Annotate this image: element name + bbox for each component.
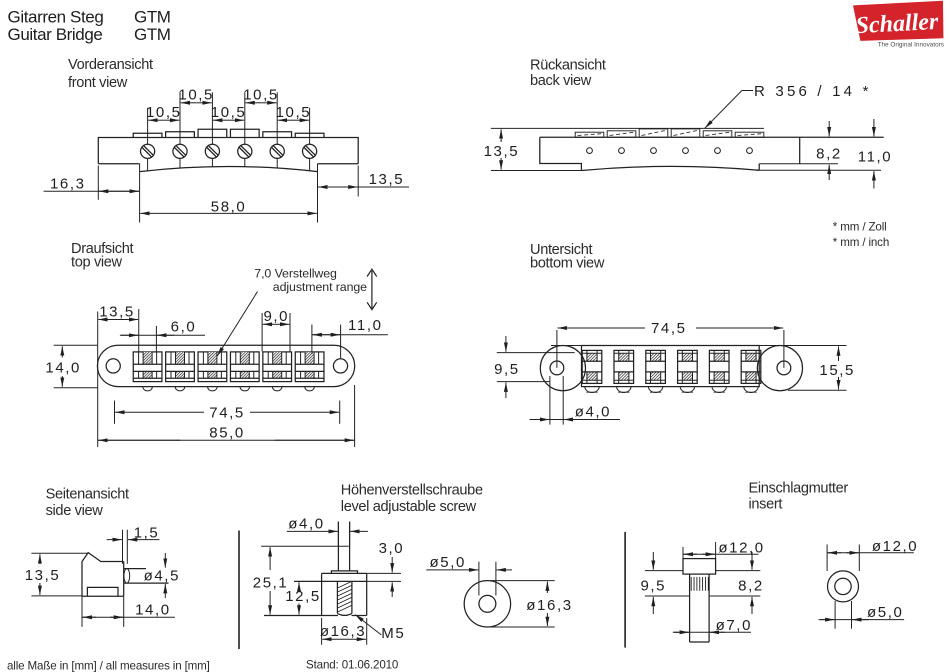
svg-text:14,0: 14,0 bbox=[45, 359, 81, 376]
svg-text:6,0: 6,0 bbox=[171, 319, 197, 336]
svg-text:top view: top view bbox=[71, 254, 123, 270]
svg-text:Guitar Bridge: Guitar Bridge bbox=[8, 25, 103, 44]
svg-text:16,3: 16,3 bbox=[50, 175, 86, 192]
svg-text:74,5: 74,5 bbox=[651, 320, 687, 337]
svg-text:level adjustable screw: level adjustable screw bbox=[341, 499, 477, 515]
svg-text:side view: side view bbox=[46, 503, 104, 519]
svg-text:13,5: 13,5 bbox=[25, 567, 61, 584]
svg-text:bottom view: bottom view bbox=[530, 256, 605, 272]
svg-text:9,5: 9,5 bbox=[494, 361, 520, 378]
svg-text:58,0: 58,0 bbox=[211, 199, 247, 216]
svg-text:ø5,0: ø5,0 bbox=[430, 554, 466, 571]
svg-text:R 356 / 14 *: R 356 / 14 * bbox=[754, 83, 872, 100]
svg-text:alle Maße in [mm] / all measur: alle Maße in [mm] / all measures in [mm] bbox=[7, 660, 210, 672]
svg-text:9,0: 9,0 bbox=[263, 308, 289, 325]
svg-text:insert: insert bbox=[749, 497, 783, 513]
svg-text:ø4,0: ø4,0 bbox=[575, 403, 611, 420]
svg-text:Gitarren Steg: Gitarren Steg bbox=[8, 7, 104, 26]
svg-text:7,0 Verstellweg: 7,0 Verstellweg bbox=[254, 267, 337, 281]
svg-text:Einschlagmutter: Einschlagmutter bbox=[749, 481, 849, 497]
svg-text:* mm / inch: * mm / inch bbox=[833, 236, 889, 249]
svg-text:Stand: 01.06.2010: Stand: 01.06.2010 bbox=[306, 659, 398, 672]
svg-text:11,0: 11,0 bbox=[348, 317, 382, 334]
svg-text:Seitenansicht: Seitenansicht bbox=[46, 486, 129, 502]
svg-text:ø4,5: ø4,5 bbox=[144, 568, 180, 585]
svg-text:front view: front view bbox=[68, 75, 128, 91]
svg-text:ø16,3: ø16,3 bbox=[526, 597, 572, 614]
svg-text:GTM: GTM bbox=[134, 25, 171, 44]
svg-text:10,5: 10,5 bbox=[146, 104, 182, 121]
svg-text:ø5,0: ø5,0 bbox=[867, 604, 903, 621]
svg-text:10,5: 10,5 bbox=[211, 104, 247, 121]
svg-text:13,5: 13,5 bbox=[369, 171, 405, 188]
svg-text:adjustment range: adjustment range bbox=[273, 280, 367, 294]
svg-text:Rückansicht: Rückansicht bbox=[530, 58, 606, 74]
svg-text:ø4,0: ø4,0 bbox=[288, 516, 324, 533]
svg-text:8,2: 8,2 bbox=[816, 145, 842, 162]
svg-text:* mm / Zoll: * mm / Zoll bbox=[833, 220, 887, 233]
svg-text:15,5: 15,5 bbox=[819, 362, 855, 379]
svg-text:9,5: 9,5 bbox=[640, 577, 666, 594]
svg-text:ø12,0: ø12,0 bbox=[872, 538, 918, 555]
svg-text:10,5: 10,5 bbox=[276, 104, 312, 121]
svg-text:3,0: 3,0 bbox=[379, 540, 405, 557]
svg-text:12,5: 12,5 bbox=[285, 588, 321, 605]
svg-text:13,5: 13,5 bbox=[484, 143, 520, 160]
svg-text:ø12,0: ø12,0 bbox=[718, 539, 764, 556]
svg-text:11,0: 11,0 bbox=[858, 148, 892, 165]
svg-text:M5: M5 bbox=[381, 625, 405, 642]
svg-text:ø7,0: ø7,0 bbox=[716, 617, 752, 634]
svg-text:The Original Innovators: The Original Innovators bbox=[878, 41, 944, 48]
svg-text:Schaller: Schaller bbox=[855, 9, 940, 39]
svg-text:8,2: 8,2 bbox=[738, 577, 764, 594]
svg-text:14,0: 14,0 bbox=[135, 601, 171, 618]
svg-text:Vorderansicht: Vorderansicht bbox=[68, 57, 153, 73]
svg-text:Höhenverstellschraube: Höhenverstellschraube bbox=[341, 482, 483, 498]
svg-text:10,5: 10,5 bbox=[178, 86, 214, 103]
svg-text:85,0: 85,0 bbox=[209, 425, 245, 442]
svg-text:ø16,3: ø16,3 bbox=[320, 623, 366, 640]
svg-text:74,5: 74,5 bbox=[209, 404, 245, 421]
svg-text:1,5: 1,5 bbox=[134, 524, 160, 541]
svg-text:back view: back view bbox=[530, 73, 592, 89]
svg-text:13,5: 13,5 bbox=[99, 304, 135, 321]
svg-text:GTM: GTM bbox=[134, 7, 171, 26]
svg-text:25,1: 25,1 bbox=[253, 574, 289, 591]
svg-text:10,5: 10,5 bbox=[243, 86, 279, 103]
